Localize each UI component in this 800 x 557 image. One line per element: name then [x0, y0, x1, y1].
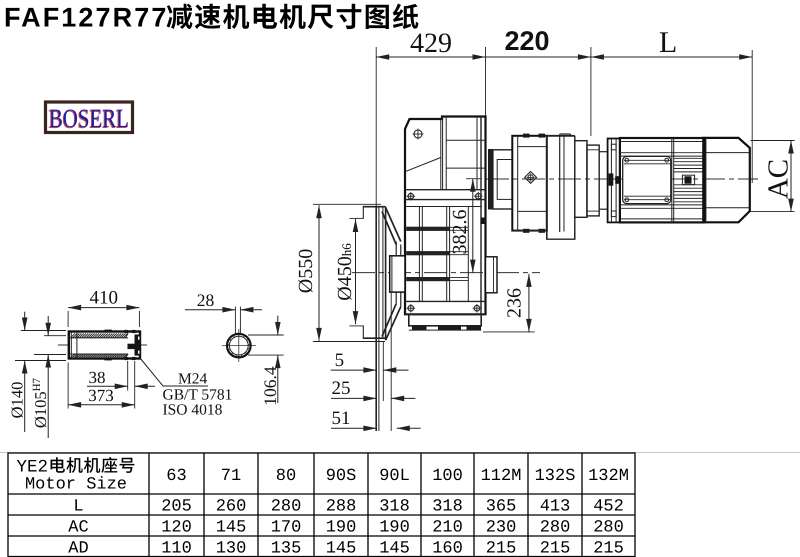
svg-text:145: 145 [216, 519, 247, 538]
svg-text:215: 215 [540, 540, 571, 557]
svg-text:110: 110 [161, 540, 192, 557]
svg-text:5: 5 [335, 350, 345, 371]
svg-text:452: 452 [593, 498, 624, 517]
svg-text:106.4: 106.4 [260, 366, 280, 406]
svg-text:AC: AC [763, 159, 795, 199]
svg-text:210: 210 [432, 519, 463, 538]
svg-text:280: 280 [593, 519, 624, 538]
svg-text:L: L [659, 26, 677, 59]
svg-text:318: 318 [432, 498, 463, 517]
svg-text:236: 236 [504, 288, 526, 318]
svg-text:51: 51 [332, 408, 351, 429]
svg-text:Ø105H7: Ø105H7 [31, 377, 50, 428]
svg-text:260: 260 [216, 498, 247, 517]
svg-text:215: 215 [593, 540, 624, 557]
svg-text:38: 38 [89, 368, 106, 387]
svg-text:Ø140: Ø140 [8, 382, 27, 419]
svg-text:145: 145 [379, 540, 410, 557]
svg-text:ISO 4018: ISO 4018 [163, 402, 223, 419]
svg-text:BOSERL: BOSERL [49, 103, 129, 133]
svg-text:Ø550: Ø550 [295, 249, 317, 293]
svg-text:220: 220 [504, 26, 549, 56]
svg-text:100: 100 [432, 467, 463, 486]
svg-text:373: 373 [88, 386, 114, 405]
svg-text:M24: M24 [178, 371, 208, 388]
svg-text:132S: 132S [535, 467, 576, 486]
svg-text:L: L [73, 498, 83, 517]
svg-text:288: 288 [326, 498, 357, 517]
svg-text:AC: AC [68, 519, 88, 538]
svg-text:205: 205 [161, 498, 192, 517]
svg-text:318: 318 [379, 498, 410, 517]
svg-text:FAF127R77: FAF127R77 [4, 3, 168, 33]
svg-text:145: 145 [326, 540, 357, 557]
svg-text:170: 170 [271, 519, 302, 538]
svg-text:132M: 132M [588, 467, 629, 486]
svg-text:215: 215 [486, 540, 517, 557]
svg-text:190: 190 [379, 519, 410, 538]
svg-text:63: 63 [166, 467, 186, 486]
svg-text:413: 413 [540, 498, 571, 517]
svg-text:90L: 90L [379, 467, 410, 486]
svg-text:280: 280 [540, 519, 571, 538]
svg-text:130: 130 [216, 540, 247, 557]
svg-text:80: 80 [276, 467, 296, 486]
svg-text:25: 25 [332, 378, 351, 399]
svg-text:429: 429 [410, 28, 452, 59]
svg-text:190: 190 [326, 519, 357, 538]
svg-text:280: 280 [271, 498, 302, 517]
svg-text:28: 28 [197, 290, 215, 310]
svg-text:230: 230 [486, 519, 517, 538]
svg-text:71: 71 [221, 467, 241, 486]
svg-text:90S: 90S [326, 467, 357, 486]
svg-text:120: 120 [161, 519, 192, 538]
svg-text:Motor Size: Motor Size [25, 476, 127, 495]
svg-text:160: 160 [432, 540, 463, 557]
svg-text:YE2: YE2 [17, 458, 49, 478]
svg-text:410: 410 [90, 288, 119, 309]
svg-text:135: 135 [271, 540, 302, 557]
svg-text:365: 365 [486, 498, 517, 517]
svg-text:112M: 112M [481, 467, 522, 486]
svg-text:Ø450h6: Ø450h6 [334, 243, 356, 301]
svg-text:AD: AD [68, 540, 88, 557]
svg-text:382.6: 382.6 [449, 210, 471, 255]
